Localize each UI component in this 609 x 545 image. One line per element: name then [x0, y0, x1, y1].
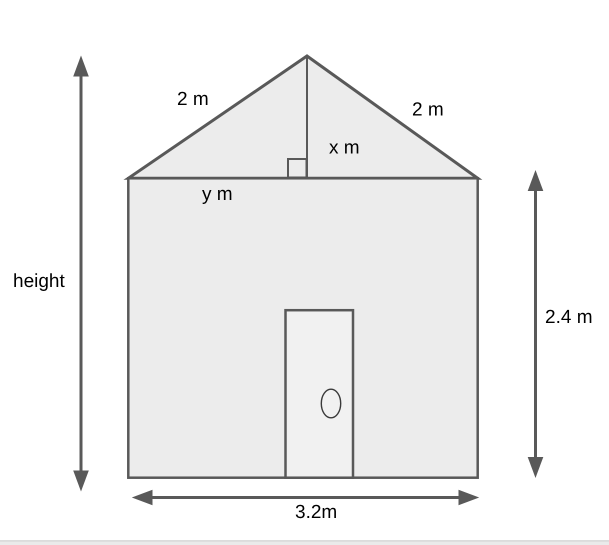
svg-text:2.4 m: 2.4 m	[545, 307, 593, 328]
svg-text:x m: x m	[329, 138, 360, 159]
svg-text:2 m: 2 m	[412, 100, 444, 121]
svg-text:height: height	[13, 271, 65, 292]
svg-text:y m: y m	[202, 184, 233, 205]
svg-text:3.2m: 3.2m	[295, 502, 337, 523]
svg-text:2 m: 2 m	[177, 89, 209, 110]
